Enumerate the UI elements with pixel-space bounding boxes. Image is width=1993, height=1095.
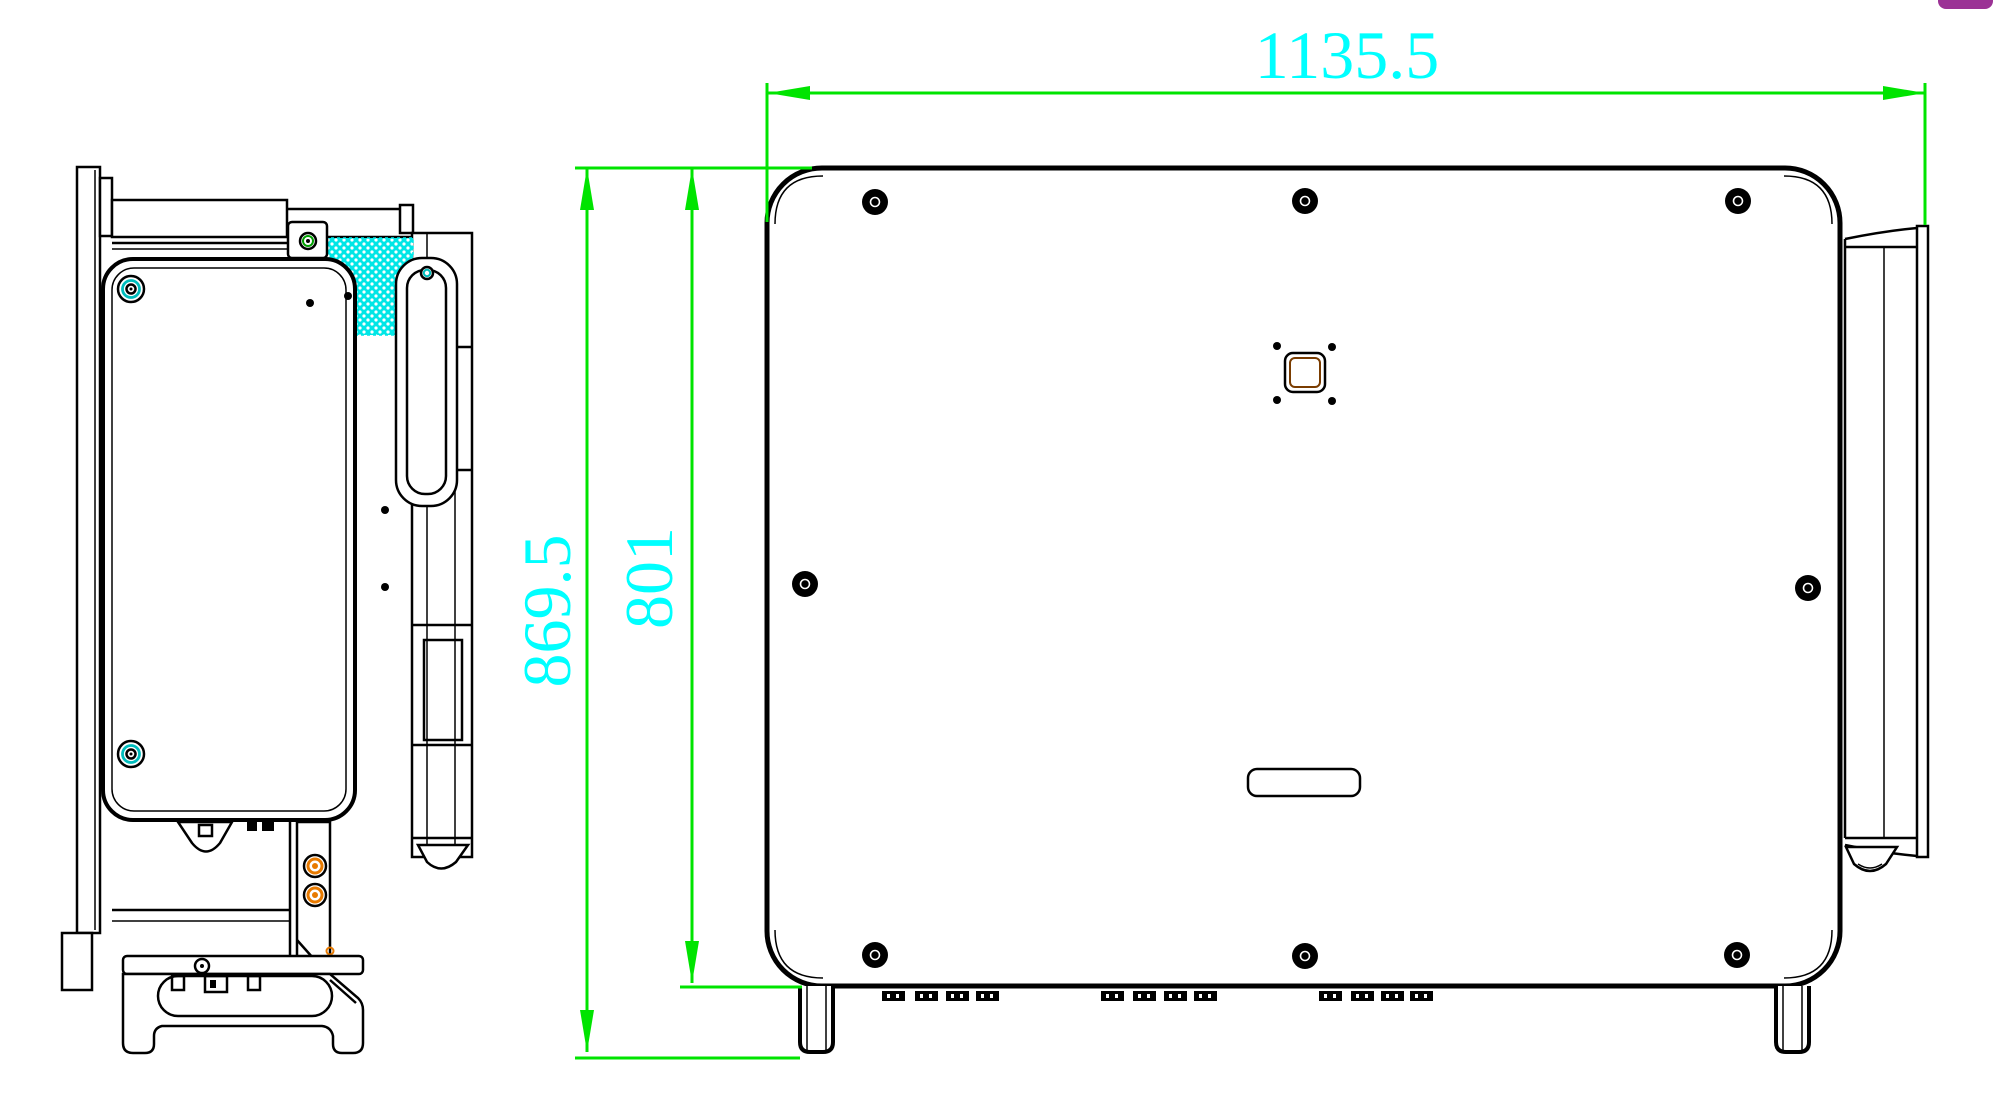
body-hole: [381, 506, 389, 514]
dim-label-overall-height: 869.5: [509, 535, 585, 688]
cover-screw-top-icon: [118, 276, 144, 302]
front-foot-left: [800, 986, 833, 1052]
handle-hole: [421, 267, 433, 279]
handle: [396, 258, 457, 506]
front-foot-right: [1776, 986, 1809, 1052]
body-hole: [381, 583, 389, 591]
drawing-canvas: 1135.5 869.5 801: [0, 0, 1993, 1095]
corner-badge: [1938, 0, 1993, 9]
dim-label-width: 1135.5: [1255, 17, 1439, 93]
screw-icon: [862, 942, 888, 968]
terminal-bottom-icon: [304, 884, 326, 906]
side-flange: [1845, 226, 1928, 871]
dim-label-body-height: 801: [611, 527, 687, 629]
side-view: [62, 167, 472, 1053]
top-bracket: [288, 222, 327, 258]
side-cover-panel: [103, 259, 355, 820]
bottom-connectors: [882, 991, 1433, 1001]
screw-icon: [1292, 943, 1318, 969]
cover-hole: [306, 299, 314, 307]
screw-icon: [1795, 575, 1821, 601]
dimension-drawing-svg: 1135.5 869.5 801: [0, 0, 1993, 1095]
front-view: [767, 168, 1928, 1052]
flange-tail-side: [418, 845, 468, 869]
terminal-top-icon: [304, 855, 326, 877]
under-cover: [112, 822, 334, 958]
cover-hole: [344, 292, 352, 300]
screw-icon: [1725, 188, 1751, 214]
side-foot: [123, 956, 363, 1053]
screw-icon: [792, 571, 818, 597]
screw-icon: [1292, 188, 1318, 214]
screw-icon: [1724, 942, 1750, 968]
screw-icon: [862, 189, 888, 215]
bracket-screw-icon: [300, 233, 316, 249]
enclosure-panel: [767, 168, 1840, 986]
cover-screw-bottom-icon: [118, 741, 144, 767]
